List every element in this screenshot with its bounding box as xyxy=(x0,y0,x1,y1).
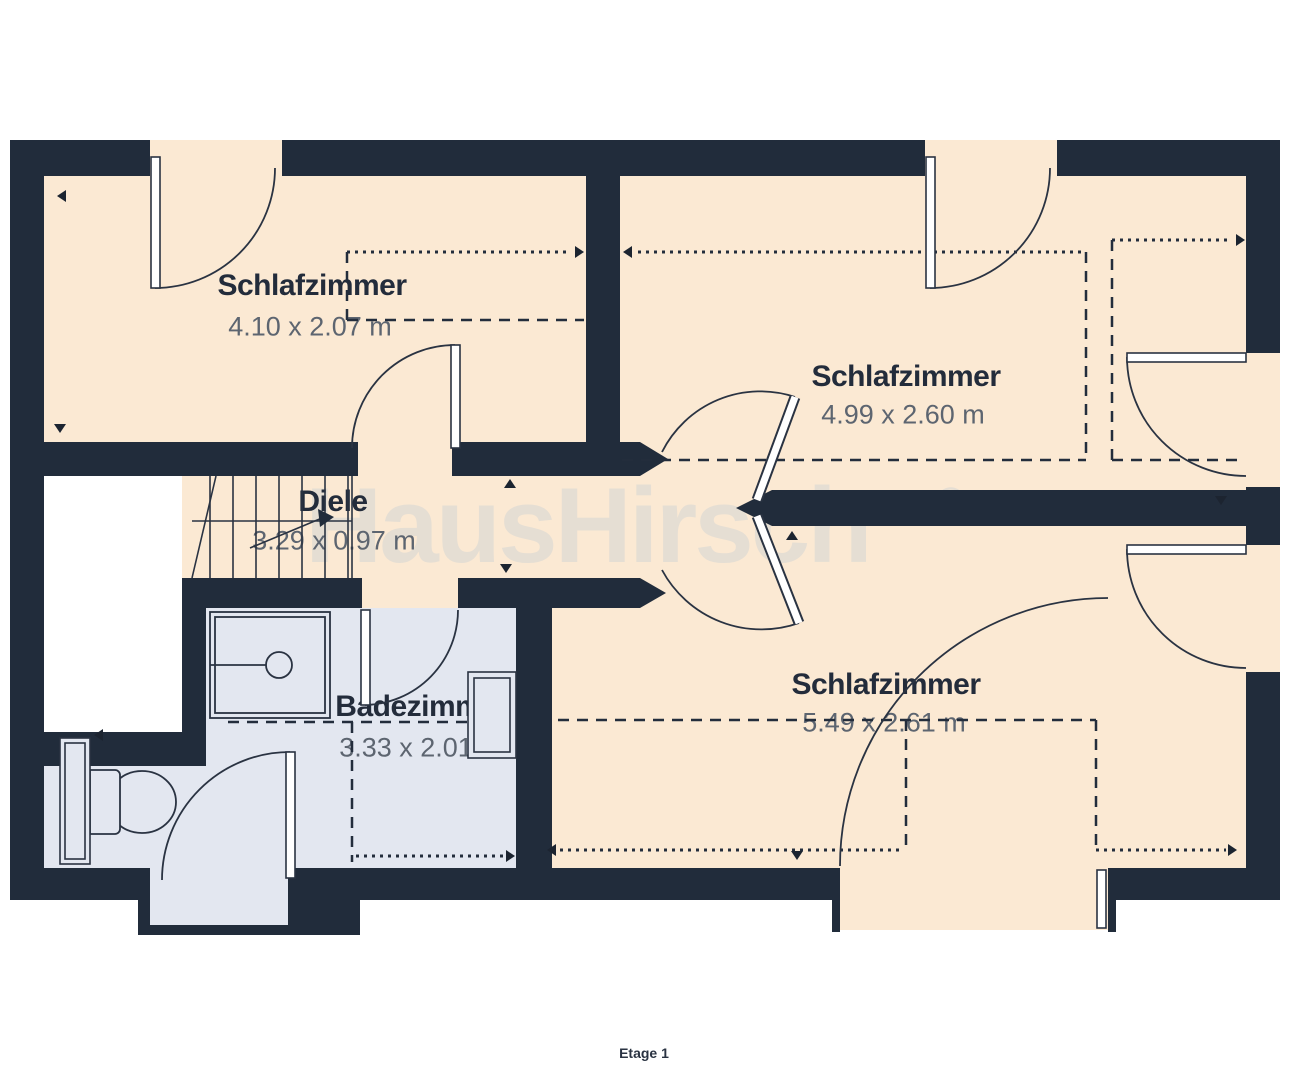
bathroom-niche-floor xyxy=(44,766,206,868)
right-window-gap-upper xyxy=(1246,353,1280,487)
room-dims-bedroom-3: 5.49 x 2.61 m xyxy=(802,708,966,739)
room-dims-bedroom-2: 4.99 x 2.60 m xyxy=(821,400,985,431)
stairwell-void xyxy=(44,476,182,732)
registered-trademark-icon: ® xyxy=(936,482,965,522)
floorplan-page: { "plan": { "brand_watermark": "HausHirs… xyxy=(0,0,1289,1080)
bathroom-door-pocket xyxy=(150,868,288,925)
room-label-bedroom-1: Schlafzimmer xyxy=(217,269,406,303)
right-window-gap-lower xyxy=(1246,545,1280,672)
room-dims-bathroom: 3.33 x 2.01 m xyxy=(339,733,503,764)
room-dims-hallway: 3.29 x 0.97 m xyxy=(252,526,416,557)
room-label-bathroom: Badezimmer xyxy=(335,690,508,724)
room-dims-bedroom-1: 4.10 x 2.07 m xyxy=(228,312,392,343)
room-label-hallway: Diele xyxy=(298,485,367,519)
top-door-gap-right xyxy=(925,140,1057,176)
room-label-bedroom-3: Schlafzimmer xyxy=(791,668,980,702)
top-door-gap-left xyxy=(150,140,282,176)
bottom-door-gap xyxy=(840,868,1108,930)
room-label-bedroom-2: Schlafzimmer xyxy=(811,360,1000,394)
floor-title: Etage 1 xyxy=(619,1045,669,1061)
